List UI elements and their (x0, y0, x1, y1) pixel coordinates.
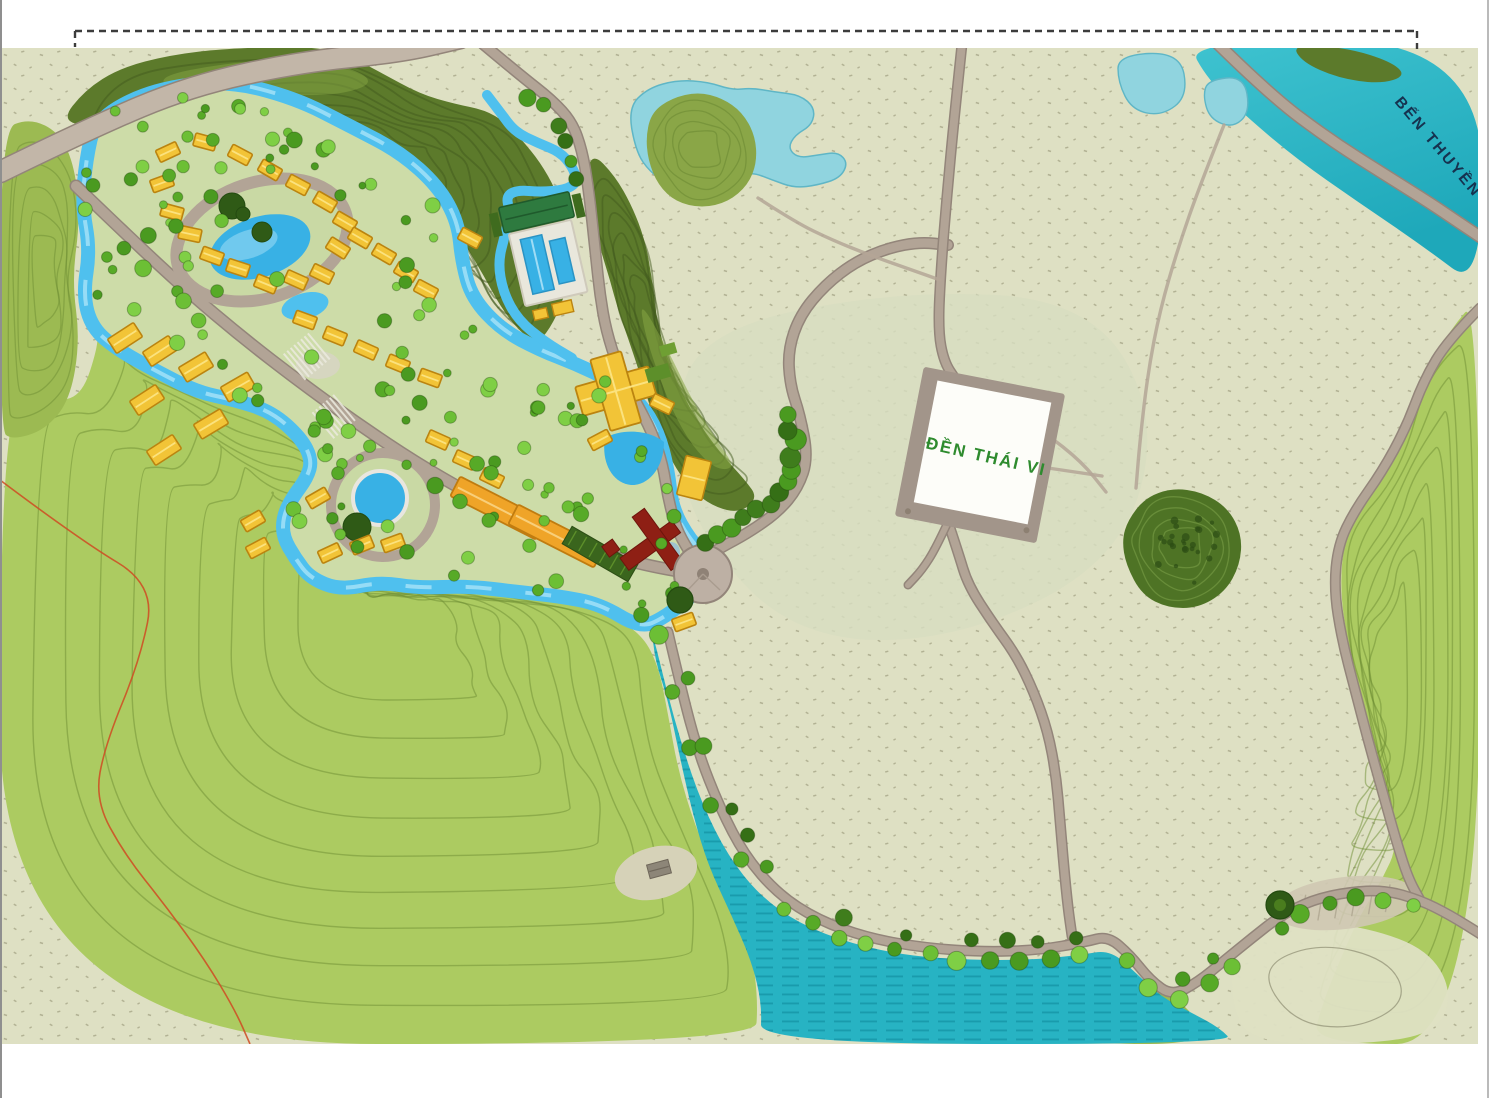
page: ĐỀN THÁI VI BẾN THUYỀN (0, 0, 1491, 1098)
site-plan-map: ĐỀN THÁI VI BẾN THUYỀN (0, 0, 1491, 1098)
forest-hill (1123, 489, 1241, 608)
map-area: ĐỀN THÁI VI BẾN THUYỀN (0, 38, 1485, 1044)
